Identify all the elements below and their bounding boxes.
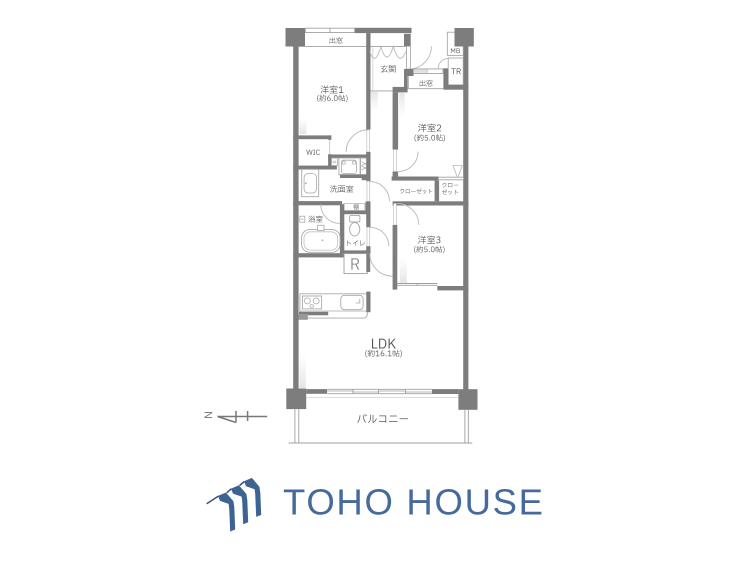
svg-text:TOHO HOUSE: TOHO HOUSE [283, 482, 545, 523]
